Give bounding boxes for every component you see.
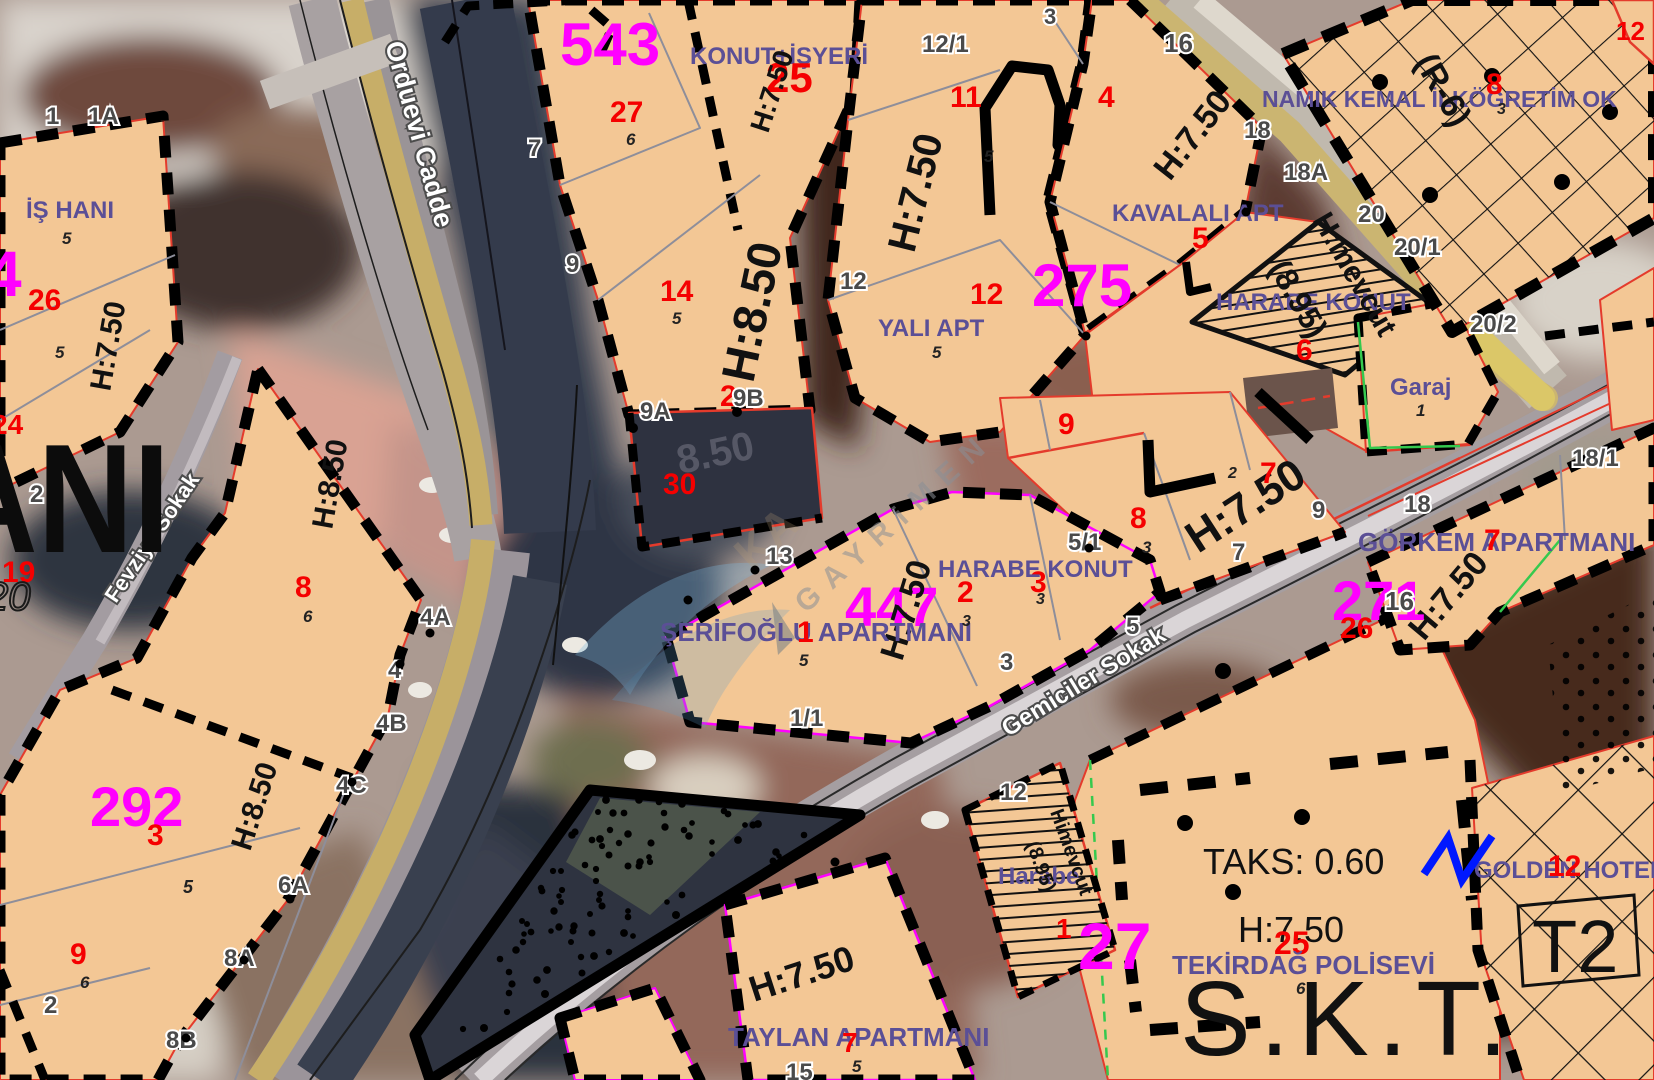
svg-text:4B: 4B <box>376 710 407 737</box>
svg-text:12: 12 <box>1616 16 1645 46</box>
svg-text:3: 3 <box>1142 538 1152 557</box>
svg-text:6: 6 <box>303 607 313 626</box>
svg-text:2: 2 <box>1227 465 1237 482</box>
svg-text:275: 275 <box>1032 252 1132 319</box>
svg-text:8A: 8A <box>224 945 255 972</box>
svg-text:9: 9 <box>1058 408 1075 441</box>
svg-text:5: 5 <box>799 651 809 670</box>
svg-text:9: 9 <box>566 251 579 278</box>
svg-text:12: 12 <box>1000 779 1027 806</box>
svg-text:4: 4 <box>0 238 22 310</box>
svg-text:20: 20 <box>1358 201 1385 228</box>
svg-text:9: 9 <box>70 938 87 971</box>
svg-text:4: 4 <box>1098 81 1115 114</box>
svg-text:8: 8 <box>295 571 312 604</box>
svg-text:14: 14 <box>660 275 694 308</box>
svg-text:16: 16 <box>1385 586 1414 616</box>
svg-text:20: 20 <box>0 575 31 619</box>
svg-text:7: 7 <box>1484 524 1501 557</box>
svg-text:7: 7 <box>528 135 541 162</box>
svg-text:9A: 9A <box>640 398 671 425</box>
svg-text:5/1: 5/1 <box>1068 529 1101 556</box>
svg-text:7: 7 <box>1232 539 1245 566</box>
svg-text:12/1: 12/1 <box>922 31 969 58</box>
svg-text:3: 3 <box>1036 591 1045 608</box>
svg-text:5: 5 <box>183 877 194 897</box>
svg-text:20/1: 20/1 <box>1394 234 1441 261</box>
svg-text:1: 1 <box>1416 401 1425 420</box>
svg-text:9: 9 <box>1312 497 1325 524</box>
svg-text:292: 292 <box>90 775 183 838</box>
svg-text:5: 5 <box>672 309 682 328</box>
svg-text:1A: 1A <box>88 103 119 130</box>
svg-text:5: 5 <box>932 343 942 362</box>
svg-text:5: 5 <box>1192 222 1209 255</box>
svg-text:26: 26 <box>1340 612 1373 645</box>
svg-text:8: 8 <box>1486 68 1503 101</box>
svg-text:1: 1 <box>797 616 814 649</box>
svg-text:1: 1 <box>46 103 59 130</box>
svg-text:6: 6 <box>626 130 636 149</box>
svg-text:8B: 8B <box>166 1027 197 1054</box>
svg-text:1: 1 <box>1056 913 1072 944</box>
svg-text:30: 30 <box>663 468 696 501</box>
svg-text:18A: 18A <box>1284 159 1328 186</box>
svg-text:20/2: 20/2 <box>1470 311 1517 338</box>
svg-text:12: 12 <box>840 268 867 295</box>
svg-text:3: 3 <box>962 613 971 630</box>
svg-text:5: 5 <box>62 229 72 248</box>
svg-text:3: 3 <box>1000 649 1013 676</box>
svg-text:3: 3 <box>1497 101 1506 118</box>
svg-text:13: 13 <box>766 543 793 570</box>
svg-text:5: 5 <box>55 343 65 362</box>
svg-text:12: 12 <box>970 278 1003 311</box>
svg-text:HARABE KONUT: HARABE KONUT <box>938 556 1133 583</box>
svg-text:Garaj: Garaj <box>1390 374 1451 401</box>
svg-text:18: 18 <box>1404 491 1431 518</box>
svg-text:1/1: 1/1 <box>790 705 823 732</box>
svg-text:7: 7 <box>1260 457 1277 490</box>
svg-text:3: 3 <box>147 819 164 852</box>
svg-text:12: 12 <box>1548 850 1581 883</box>
svg-text:5: 5 <box>984 147 994 166</box>
svg-text:İŞ HANI: İŞ HANI <box>26 197 114 224</box>
svg-text:16: 16 <box>1164 28 1193 58</box>
svg-text:11: 11 <box>950 81 982 114</box>
svg-text:7: 7 <box>842 1027 858 1058</box>
svg-text:YALI APT: YALI APT <box>878 315 985 342</box>
svg-text:6: 6 <box>80 973 90 992</box>
svg-text:27: 27 <box>610 96 643 129</box>
svg-text:TAYLAN APARTMANI: TAYLAN APARTMANI <box>728 1022 989 1052</box>
svg-text:26: 26 <box>28 284 61 317</box>
svg-text:15: 15 <box>786 1059 813 1080</box>
svg-text:ŞERİFOĞLU APARTMANI: ŞERİFOĞLU APARTMANI <box>660 617 972 647</box>
svg-text:18/1: 18/1 <box>1572 445 1619 472</box>
svg-text:3: 3 <box>1044 4 1056 29</box>
svg-text:T2: T2 <box>1532 905 1618 988</box>
svg-text:5: 5 <box>1126 613 1139 640</box>
svg-text:5: 5 <box>852 1057 862 1076</box>
svg-text:18: 18 <box>1244 117 1271 144</box>
svg-text:6A: 6A <box>278 872 309 899</box>
svg-text:2: 2 <box>44 992 57 1019</box>
svg-text:543: 543 <box>560 11 660 78</box>
svg-text:27: 27 <box>1078 909 1151 983</box>
svg-text:8: 8 <box>1130 502 1147 535</box>
svg-text:2: 2 <box>30 481 43 508</box>
svg-text:TAKS: 0.60: TAKS: 0.60 <box>1203 841 1384 882</box>
svg-text:4A: 4A <box>420 604 451 631</box>
svg-text:S.K.T.: S.K.T. <box>1180 960 1517 1078</box>
